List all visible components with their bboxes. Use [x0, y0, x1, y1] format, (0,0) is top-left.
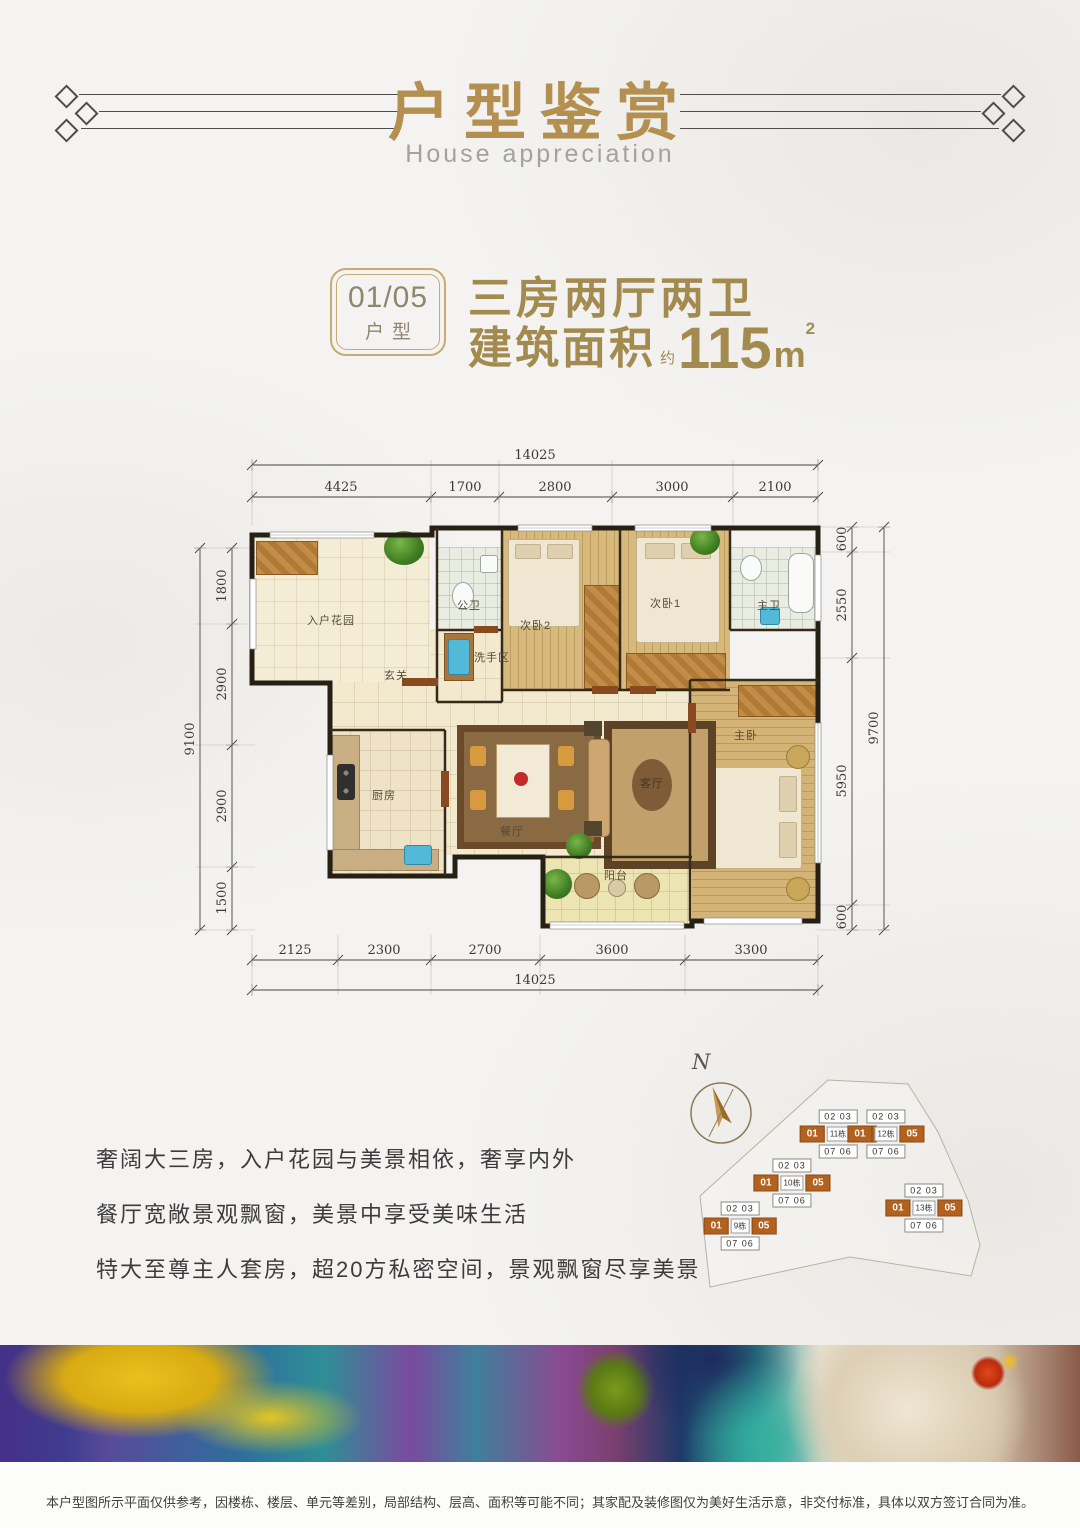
building-9: 02 03 01 9栋 05 07 06: [704, 1202, 777, 1251]
svg-text:9700: 9700: [867, 711, 882, 744]
unit-05: 05: [937, 1200, 962, 1217]
label-master-bedroom: 主卧: [734, 727, 758, 743]
floor-plan: 入户花园 公卫 洗手区 玄关 次卧2 次卧1 主卫 厨房 餐厅 客厅 主卧 阳台: [252, 527, 818, 933]
selling-point: 特大至尊主人套房，超20方私密空间，景观飘窗尽享美景: [96, 1252, 700, 1284]
svg-text:5950: 5950: [835, 764, 850, 797]
svg-text:2900: 2900: [215, 789, 230, 822]
label-foyer: 玄关: [384, 667, 408, 683]
label-wash-area: 洗手区: [474, 649, 510, 665]
area-label: 建筑面积: [468, 312, 656, 376]
label-bedroom2: 次卧2: [520, 617, 551, 633]
unit-01: 01: [800, 1126, 825, 1143]
svg-text:9100: 9100: [183, 722, 198, 755]
svg-text:2125: 2125: [278, 943, 311, 958]
svg-text:600: 600: [835, 527, 850, 552]
unit-05: 05: [805, 1175, 830, 1192]
svg-text:3300: 3300: [734, 943, 767, 958]
svg-text:1800: 1800: [215, 569, 230, 602]
decorative-painting: [0, 1345, 1080, 1462]
label-bedroom1: 次卧1: [650, 595, 681, 611]
unit-type-label: 户型: [357, 317, 419, 344]
page-title: 户型鉴赏: [0, 62, 1080, 152]
label-kitchen: 厨房: [372, 787, 396, 803]
svg-text:2900: 2900: [215, 667, 230, 700]
building-number: 11栋: [827, 1127, 849, 1142]
selling-point: 奢阔大三房，入户花园与美景相依，奢享内外: [96, 1142, 700, 1174]
poster-page: 户型鉴赏 House appreciation 01/05 户型 三房两厅两卫 …: [0, 0, 1080, 1528]
svg-text:3000: 3000: [655, 480, 688, 495]
building-12: 02 03 01 12栋 05 07 06: [847, 1110, 924, 1159]
unit-05: 05: [899, 1126, 924, 1143]
selling-points: 奢阔大三房，入户花园与美景相依，奢享内外 餐厅宽敞景观飘窗，美景中享受美味生活 …: [96, 1142, 700, 1307]
svg-text:1500: 1500: [215, 881, 230, 914]
area-unit: m2: [774, 334, 815, 376]
building-13: 02 03 01 13栋 05 07 06: [885, 1184, 962, 1233]
building-number: 12栋: [875, 1127, 898, 1142]
svg-text:2550: 2550: [835, 588, 850, 621]
label-dining: 餐厅: [500, 823, 524, 839]
unit-01: 01: [704, 1218, 729, 1235]
svg-text:3600: 3600: [595, 943, 628, 958]
svg-text:2700: 2700: [468, 943, 501, 958]
svg-text:2300: 2300: [367, 943, 400, 958]
unit-01: 01: [753, 1175, 778, 1192]
svg-text:600: 600: [835, 905, 850, 930]
building-number: 9栋: [731, 1219, 749, 1234]
label-public-bath: 公卫: [457, 597, 481, 613]
unit-area: 建筑面积 约 115 m2: [468, 312, 815, 376]
building-number: 10栋: [781, 1176, 804, 1191]
selling-point: 餐厅宽敞景观飘窗，美景中享受美味生活: [96, 1197, 700, 1229]
svg-text:1700: 1700: [448, 480, 481, 495]
unit-type-badge: 01/05 户型: [330, 268, 446, 356]
unit-01: 01: [847, 1126, 872, 1143]
unit-number: 01/05: [348, 281, 428, 315]
label-master-bath: 主卫: [757, 597, 781, 613]
page-subtitle: House appreciation: [0, 140, 1080, 169]
disclaimer-text: 本户型图所示平面仅供参考，因楼栋、楼层、单元等差别，局部结构、层高、面积等可能不…: [0, 1492, 1080, 1511]
svg-text:4425: 4425: [324, 480, 357, 495]
label-entry-garden: 入户花园: [307, 612, 355, 628]
building-number: 13栋: [913, 1201, 936, 1216]
unit-01: 01: [885, 1200, 910, 1217]
building-10: 02 03 01 10栋 05 07 06: [753, 1159, 830, 1208]
area-value: 115: [678, 321, 772, 376]
svg-text:2800: 2800: [538, 480, 571, 495]
svg-text:14025: 14025: [514, 973, 555, 988]
svg-text:2100: 2100: [758, 480, 791, 495]
unit-05: 05: [751, 1218, 776, 1235]
svg-text:14025: 14025: [514, 448, 555, 463]
label-balcony: 阳台: [604, 867, 628, 883]
label-living: 客厅: [640, 775, 664, 791]
area-approx: 约: [660, 347, 675, 368]
